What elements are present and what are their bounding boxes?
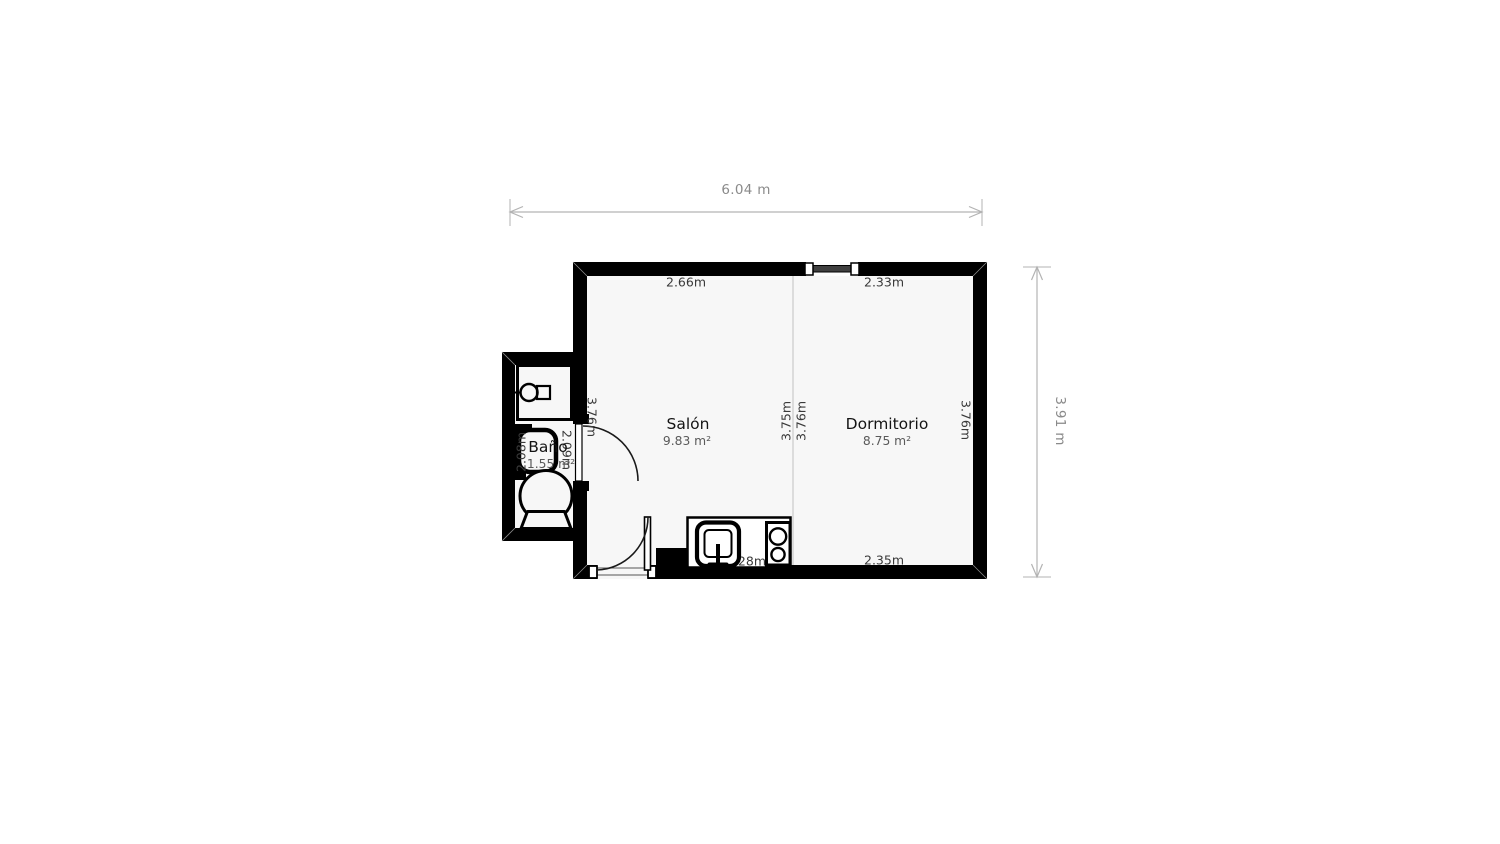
dim-dormitorio-bottom: 2.35m [864,553,904,568]
room-area-bano: 1.55 m² [527,457,575,471]
room-area-salon: 9.83 m² [663,434,711,448]
total-width-dimension: 6.04 m [721,182,770,198]
dim-dormitorio-top: 2.33m [864,275,904,290]
floorplan-canvas: 6.04 m 3.91 m 2.66m 2.33m 3.76m 3.75m 3.… [0,0,1500,844]
dim-salon-center: 3.75m [779,401,794,441]
total-height-dimension: 3.91 m [1052,396,1068,445]
dim-salon-top: 2.66m [666,275,706,290]
room-area-dormitorio: 8.75 m² [863,434,911,448]
dim-salon-left: 3.76m [585,397,600,437]
dim-salon-bottom: 1.28m [726,554,766,569]
room-name-bano: Baño [528,438,567,456]
dim-dormitorio-right: 3.76m [959,400,974,440]
dim-dormitorio-center: 3.76m [794,401,809,441]
room-name-dormitorio: Dormitorio [846,415,929,433]
labels-layer: 6.04 m 3.91 m 2.66m 2.33m 3.76m 3.75m 3.… [0,0,1500,844]
room-name-salon: Salón [667,415,710,433]
